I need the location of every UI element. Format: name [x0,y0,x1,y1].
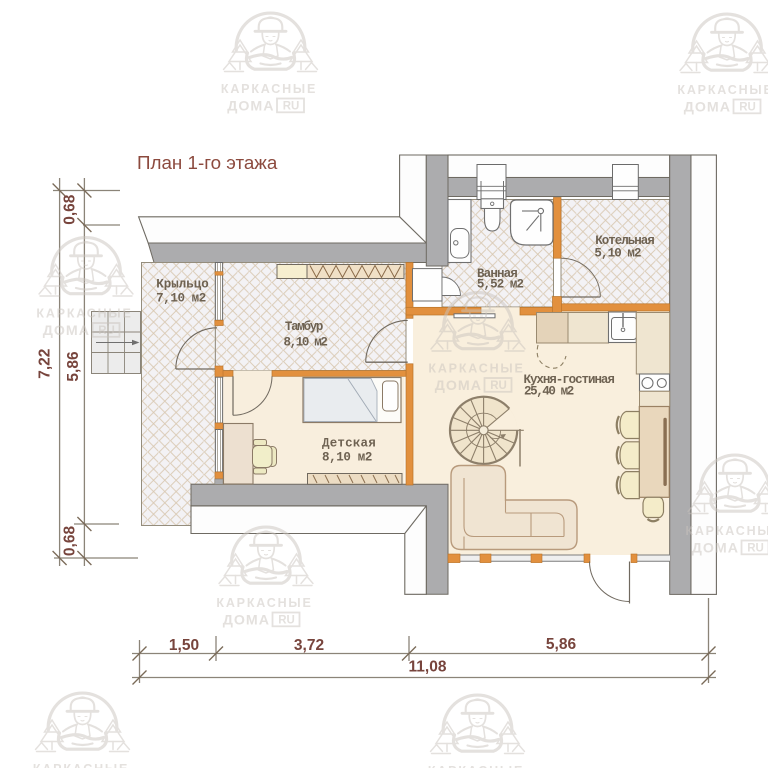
svg-text:3,72: 3,72 [294,637,324,654]
svg-text:7,22: 7,22 [37,349,54,379]
svg-text:5,52 м2: 5,52 м2 [477,278,524,292]
svg-text:0,68: 0,68 [62,526,79,557]
svg-text:Тамбур: Тамбур [285,319,323,334]
svg-text:0,68: 0,68 [62,194,79,225]
svg-text:5,86: 5,86 [65,351,82,382]
svg-text:8,10 м2: 8,10 м2 [283,336,327,350]
svg-text:План 1-го этажа: План 1-го этажа [137,152,278,173]
svg-text:7,10 м2: 7,10 м2 [156,292,206,306]
svg-text:Крыльцо: Крыльцо [156,278,209,292]
svg-text:8,10 м2: 8,10 м2 [322,451,372,465]
svg-text:5,86: 5,86 [546,636,577,653]
svg-text:5,10 м2: 5,10 м2 [594,246,641,260]
svg-text:11,08: 11,08 [409,659,447,676]
svg-text:1,50: 1,50 [169,637,199,654]
svg-text:25,40 м2: 25,40 м2 [524,385,574,399]
svg-text:Детская: Детская [322,437,376,451]
